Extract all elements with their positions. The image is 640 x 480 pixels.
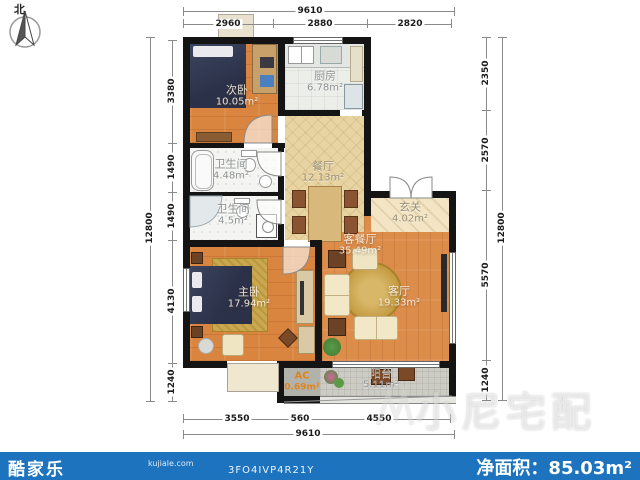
dim-tick: [168, 240, 177, 241]
dim-label: 560: [289, 414, 312, 424]
dim-tick: [273, 19, 274, 28]
dining-table: [308, 186, 342, 242]
dim-tick: [454, 7, 455, 16]
dim-tick: [168, 401, 177, 402]
wall-segment: [278, 143, 284, 152]
dim-tick: [451, 19, 452, 28]
washing-machine: [256, 214, 277, 238]
dim-label: 3550: [222, 414, 251, 424]
floor-plan-canvas: 北 9610 2960 2880 2820 12800 3380 1490 14…: [0, 0, 640, 480]
dresser: [196, 132, 232, 142]
window-living-right: [449, 252, 456, 344]
laptop: [260, 75, 274, 87]
dim-label-top-total: 9610: [295, 6, 324, 16]
dim-label: 4130: [167, 286, 177, 315]
watermark-logo-icon: [372, 387, 416, 431]
flower-plant: [334, 378, 344, 388]
dim-label-left-total: 12800: [145, 210, 155, 245]
wall-segment: [278, 176, 284, 200]
net-area-label: 净面积：: [476, 458, 548, 479]
wall-segment: [364, 191, 390, 198]
toilet-bowl: [236, 205, 249, 218]
compass-icon: [2, 8, 48, 54]
kitchen-sink: [288, 46, 314, 64]
plant: [323, 338, 341, 356]
kitchen-cabinet: [350, 46, 363, 82]
dim-label: 3380: [167, 76, 177, 105]
toilet-bowl: [243, 158, 256, 172]
dresser: [296, 270, 314, 324]
bed: [190, 44, 246, 108]
round-rug: [342, 262, 402, 322]
sofa: [354, 316, 398, 340]
dim-label: 5570: [481, 260, 491, 289]
wall-segment: [277, 361, 332, 368]
dim-label-bottom-total: 9610: [293, 429, 322, 439]
watermark: 小尼宅配: [372, 380, 596, 438]
dim-tick: [183, 430, 184, 439]
side-table: [328, 250, 346, 268]
tv: [441, 254, 447, 312]
dining-chair: [292, 190, 306, 208]
pillow: [192, 296, 202, 312]
pillow: [192, 272, 202, 288]
brand-domain: kujiale.com: [148, 459, 194, 468]
washer-door: [262, 221, 274, 233]
dining-chair: [344, 216, 358, 234]
dining-chair: [292, 216, 306, 234]
wall-segment: [190, 192, 278, 196]
dim-tick: [482, 360, 491, 361]
room-floor-passage: [364, 216, 371, 232]
wall-segment: [362, 110, 371, 116]
dim-tick: [183, 19, 184, 28]
dim-tick: [168, 363, 177, 364]
fridge: [344, 84, 363, 109]
dim-label: 2820: [395, 19, 424, 29]
wall-segment: [278, 37, 285, 115]
dim-tick: [168, 192, 177, 193]
window-kitchen: [293, 37, 343, 44]
nightstand: [191, 252, 203, 264]
bed: [190, 266, 252, 324]
wall-segment: [183, 240, 283, 247]
wall-segment: [277, 396, 320, 403]
entry-door-left-leaf: [390, 177, 411, 198]
nightstand: [191, 326, 203, 338]
net-area-value: 85.03m²: [548, 458, 632, 479]
dim-tick: [183, 7, 184, 16]
armchair: [352, 248, 378, 270]
side-table: [328, 318, 346, 336]
wall-segment: [183, 37, 190, 268]
sofa-cushion-line: [376, 317, 377, 339]
room-floor-xuanguan: [371, 198, 449, 232]
footer-bar: 酷家乐 kujiale.com 3FO4IVP4R21Y 净面积：85.03m²: [0, 452, 640, 480]
dim-label: 2880: [305, 19, 334, 29]
dim-tick: [482, 190, 491, 191]
sofa-cushion-line: [325, 295, 349, 296]
dim-tick: [367, 19, 368, 28]
net-area: 净面积：85.03m²: [476, 454, 632, 480]
dim-tick: [146, 401, 155, 402]
desk: [252, 44, 277, 94]
wall-segment: [183, 361, 227, 368]
wall-segment: [449, 191, 456, 252]
desk-item: [260, 57, 274, 68]
pillow: [193, 46, 233, 57]
bathtub-inner: [195, 154, 212, 189]
bay-window-master: [227, 363, 279, 392]
window-living-balcony: [332, 361, 440, 368]
dim-line-right-segments: [486, 37, 487, 400]
dim-label: 1490: [167, 201, 177, 230]
plan-code: 3FO4IVP4R21Y: [228, 465, 314, 476]
wall-segment: [440, 361, 456, 368]
sink-basin: [259, 175, 272, 188]
desk: [298, 326, 315, 354]
dim-label: 1240: [167, 367, 177, 396]
dim-label-right-total: 12800: [497, 210, 507, 245]
sink-divider: [301, 47, 302, 63]
stove: [320, 46, 342, 64]
ottoman: [198, 338, 214, 354]
planter-box: [398, 367, 415, 381]
dim-tick: [183, 414, 184, 423]
wall-segment: [278, 110, 340, 116]
toilet-tank: [241, 150, 257, 157]
wall-segment: [183, 312, 190, 368]
brand-logo: 酷家乐: [8, 455, 65, 480]
wall-segment: [183, 143, 244, 148]
dim-label: 2960: [213, 19, 242, 29]
dim-label: 2570: [481, 135, 491, 164]
dim-label: 1490: [167, 152, 177, 181]
dim-tick: [168, 40, 177, 41]
window-master-left: [183, 268, 190, 312]
dim-tick: [482, 37, 491, 38]
dim-tick: [168, 143, 177, 144]
room-floor-ac: [284, 368, 320, 396]
dim-tick: [146, 37, 155, 38]
toilet-tank: [234, 198, 250, 204]
entry-door-right-leaf: [411, 177, 432, 198]
dim-label: 2350: [481, 58, 491, 87]
wall-segment: [315, 240, 322, 368]
armchair: [222, 334, 244, 356]
bathtub: [191, 150, 214, 191]
tv: [300, 281, 304, 315]
wall-segment: [364, 37, 371, 198]
dining-chair: [344, 190, 358, 208]
watermark-text: 小尼宅配: [416, 380, 596, 438]
wall-segment: [364, 198, 371, 216]
sofa: [324, 274, 350, 316]
dim-tick: [482, 110, 491, 111]
dim-tick: [498, 37, 507, 38]
